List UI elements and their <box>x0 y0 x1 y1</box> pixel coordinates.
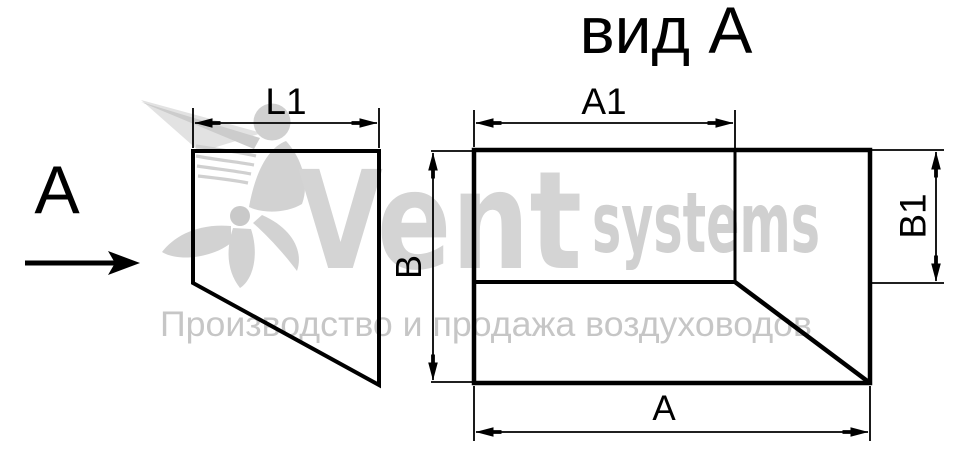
watermark-tagline: Производство и продажа воздуховодов <box>160 305 812 344</box>
dimension-label-b: В <box>391 255 427 279</box>
dimension-label-b1: В1 <box>895 193 932 238</box>
drawing-canvas: Vent systems Производство и продажа возд… <box>0 0 957 450</box>
watermark-brand-main: Vent <box>298 143 582 301</box>
dimension-label-l1: L1 <box>246 83 326 120</box>
logo-hub-circle <box>230 206 250 226</box>
dimension-label-a1: А1 <box>564 83 644 120</box>
watermark-hummingbird-logo <box>141 100 305 288</box>
technical-drawing-page: Vent systems Производство и продажа возд… <box>0 0 957 450</box>
watermark-brand-suffix: systems <box>592 174 820 272</box>
view-arrow-label: А <box>17 156 97 224</box>
view-direction-arrow <box>25 251 140 275</box>
dimension-label-a: А <box>624 391 704 426</box>
view-title: вид А <box>554 0 778 63</box>
